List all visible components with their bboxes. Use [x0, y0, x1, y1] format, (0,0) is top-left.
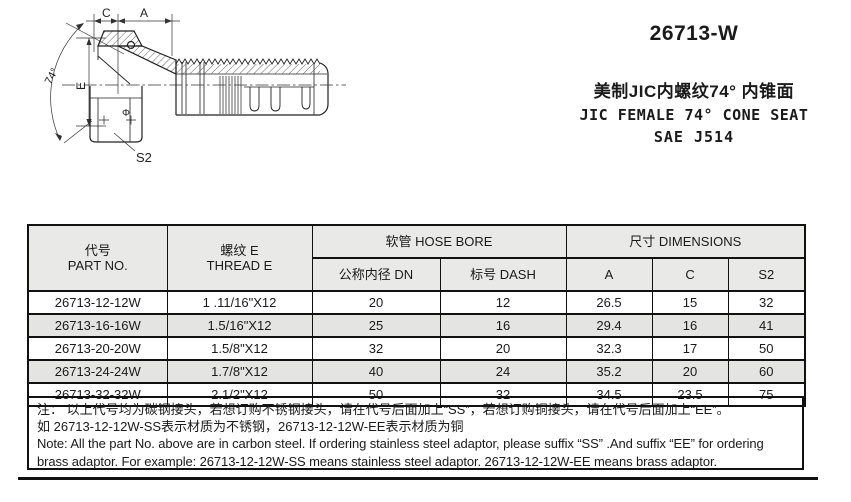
angle-label: 74° [43, 66, 61, 86]
cell-dn: 25 [312, 314, 440, 337]
technical-drawing: C A 74° E Φ S2 [14, 2, 394, 192]
title-block: 26713-W 美制JIC内螺纹74° 内锥面 JIC FEMALE 74° C… [548, 22, 840, 146]
cell-dash: 12 [440, 291, 566, 314]
cell-dim-s2: 60 [728, 360, 805, 383]
cell-thread: 1.5/8"X12 [167, 337, 312, 360]
cell-dim-c: 20 [652, 360, 728, 383]
cell-dim-c: 15 [652, 291, 728, 314]
product-standard: SAE J514 [548, 128, 840, 146]
cell-dn: 20 [312, 291, 440, 314]
table-body: 26713-12-12W 1 .11/16"X12 20 12 26.5 15 … [28, 291, 805, 406]
cell-dim-a: 29.4 [566, 314, 652, 337]
cell-part-no: 26713-24-24W [28, 360, 167, 383]
col-header-thread-cn: 螺纹 E [168, 243, 312, 258]
product-title-cn: 美制JIC内螺纹74° 内锥面 [548, 77, 840, 102]
cell-dn: 32 [312, 337, 440, 360]
dim-label-c: C [102, 6, 111, 20]
table-row: 26713-12-12W 1 .11/16"X12 20 12 26.5 15 … [28, 291, 805, 314]
col-header-part-no-cn: 代号 [29, 243, 167, 258]
cell-dn: 40 [312, 360, 440, 383]
cell-dim-a: 26.5 [566, 291, 652, 314]
cell-dim-s2: 50 [728, 337, 805, 360]
footer-divider [18, 477, 818, 480]
section-hatch-band [176, 64, 320, 74]
table-row: 26713-24-24W 1.7/8"X12 40 24 35.2 20 60 [28, 360, 805, 383]
note-line2-cn: 如 26713-12-12W-SS表示材质为不锈钢，26713-12-12W-E… [37, 418, 794, 435]
fitting-outline [90, 31, 328, 142]
dim-label-a: A [140, 6, 148, 20]
cell-part-no: 26713-12-12W [28, 291, 167, 314]
spec-table-wrap: 代号 PART NO. 螺纹 E THREAD E 软管 HOSE BORE 尺… [27, 224, 804, 407]
spec-table: 代号 PART NO. 螺纹 E THREAD E 软管 HOSE BORE 尺… [27, 224, 806, 407]
cell-dim-s2: 32 [728, 291, 805, 314]
col-header-dimensions: 尺寸 DIMENSIONS [566, 225, 805, 258]
notes-box: 注： 以上代号均为碳钢接头，若想订购不锈钢接头，请在代号后面加上“SS”，若想订… [27, 396, 804, 470]
cell-dim-a: 32.3 [566, 337, 652, 360]
cell-thread: 1 .11/16"X12 [167, 291, 312, 314]
cell-dim-c: 17 [652, 337, 728, 360]
col-header-a: A [566, 258, 652, 291]
cell-dash: 20 [440, 337, 566, 360]
dim-label-e: E [74, 82, 88, 90]
cell-thread: 1.7/8"X12 [167, 360, 312, 383]
cell-dim-c: 16 [652, 314, 728, 337]
table-row: 26713-20-20W 1.5/8"X12 32 20 32.3 17 50 [28, 337, 805, 360]
col-header-dn: 公称内径 DN [312, 258, 440, 291]
cell-part-no: 26713-20-20W [28, 337, 167, 360]
product-title-en: JIC FEMALE 74° CONE SEAT [548, 106, 840, 124]
col-header-thread: 螺纹 E THREAD E [167, 225, 312, 291]
cell-part-no: 26713-16-16W [28, 314, 167, 337]
dim-label-s2: S2 [136, 150, 152, 165]
col-header-c: C [652, 258, 728, 291]
col-header-part-no: 代号 PART NO. [28, 225, 167, 291]
cell-dash: 24 [440, 360, 566, 383]
note-line1-en: Note: All the part No. above are in carb… [37, 435, 794, 453]
phi-symbol: Φ [122, 108, 130, 119]
col-header-s2: S2 [728, 258, 805, 291]
cell-dim-s2: 41 [728, 314, 805, 337]
cell-dim-a: 35.2 [566, 360, 652, 383]
col-header-part-no-en: PART NO. [29, 258, 167, 273]
note-line1-cn: 注： 以上代号均为碳钢接头，若想订购不锈钢接头，请在代号后面加上“SS”，若想订… [37, 401, 794, 418]
col-header-thread-en: THREAD E [168, 258, 312, 273]
note-line2-en: brass adaptor. For example: 26713-12-12W… [37, 453, 794, 471]
table-row: 26713-16-16W 1.5/16"X12 25 16 29.4 16 41 [28, 314, 805, 337]
col-header-hose-bore: 软管 HOSE BORE [312, 225, 566, 258]
cell-dash: 16 [440, 314, 566, 337]
cell-thread: 1.5/16"X12 [167, 314, 312, 337]
part-model-number: 26713-W [548, 22, 840, 46]
col-header-dash: 标号 DASH [440, 258, 566, 291]
